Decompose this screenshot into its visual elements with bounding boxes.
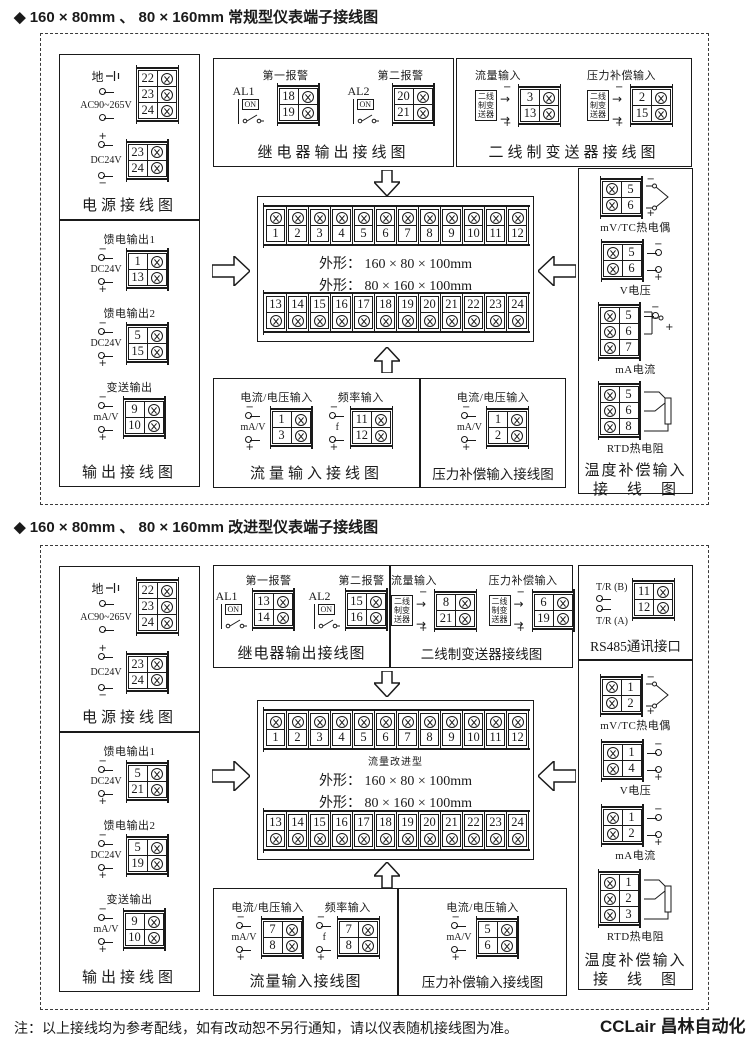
screw-cell bbox=[266, 713, 285, 730]
terminal-number: 6 bbox=[376, 729, 395, 746]
s1-center-terminal-box: 123456789101112 外形： 160 × 80 × 100mm 外形：… bbox=[257, 196, 534, 342]
terminal-strip-top: 123456789101112 bbox=[263, 205, 530, 246]
terminal-number: 9 bbox=[442, 729, 461, 746]
wire-stub bbox=[451, 923, 466, 930]
terminal-number: 1 bbox=[619, 874, 639, 891]
screw-cell bbox=[288, 209, 307, 226]
terminal-column: 14 bbox=[288, 814, 307, 847]
dc-connection: + DC24V − 2324 bbox=[90, 652, 168, 692]
terminal-strip-bottom: 131415161718192021222324 bbox=[263, 292, 530, 333]
wire-labels: − mA/V + bbox=[94, 401, 119, 434]
screw-icon bbox=[151, 858, 163, 870]
thermocouple-icon: − + bbox=[646, 675, 672, 715]
wire-plus: + bbox=[647, 265, 664, 274]
screw-cell bbox=[413, 104, 433, 121]
terminal-number: 13 bbox=[266, 296, 285, 313]
terminal-column: 9 bbox=[442, 209, 461, 242]
terminal-block: 313 bbox=[518, 86, 561, 125]
screw-icon bbox=[302, 107, 314, 119]
terminal-number: 15 bbox=[347, 593, 367, 610]
terminal-block: 56 bbox=[601, 241, 644, 280]
screw-cell bbox=[310, 713, 329, 730]
wire-plus: + bbox=[461, 435, 478, 444]
wire-plus: + bbox=[451, 945, 468, 954]
plus-sign: + bbox=[99, 871, 107, 881]
wire-plus: + bbox=[98, 140, 115, 149]
alarm-tag: AL1 bbox=[216, 590, 250, 603]
terminal-column: 5 bbox=[354, 713, 373, 746]
wire-labels: 地 AC90~265V bbox=[80, 580, 132, 634]
connection: − mA/V + 56 bbox=[447, 918, 519, 957]
screw-icon bbox=[446, 716, 458, 728]
screw-cell bbox=[602, 181, 622, 198]
connection: 二线制变送器 −→ +→ 821 bbox=[391, 591, 475, 630]
signal-label: mA/V bbox=[232, 932, 257, 943]
screw-cell bbox=[464, 312, 483, 329]
screw-cell bbox=[602, 679, 622, 696]
screw-icon bbox=[151, 146, 163, 158]
group-name: 频率输入 bbox=[338, 389, 384, 405]
box-title: 流量输入接线图 bbox=[214, 462, 419, 483]
temp-group: 567 − + mA电流 bbox=[598, 304, 674, 377]
transmitter-line: 制变 bbox=[590, 101, 606, 110]
terminal-number: 5 bbox=[128, 765, 148, 782]
screw-icon bbox=[501, 940, 513, 952]
terminal-row: 2 bbox=[602, 695, 641, 712]
screw-cell bbox=[508, 209, 527, 226]
s2-center-terminal-box: 123456789101112 流量改进型 外形： 160 × 80 × 100… bbox=[257, 700, 534, 860]
plus-sign: + bbox=[99, 285, 107, 295]
terminal-number: 23 bbox=[128, 144, 148, 161]
on-label: ON bbox=[225, 604, 243, 615]
arrow-plus: +→ bbox=[612, 110, 627, 122]
switch-icon bbox=[357, 113, 379, 124]
terminal-number: 9 bbox=[442, 225, 461, 242]
arrow-minus: −→ bbox=[416, 595, 431, 607]
terminal-number: 11 bbox=[634, 583, 654, 600]
terminal-number: 3 bbox=[310, 729, 329, 746]
connection: − mA/V + 910 bbox=[94, 398, 166, 437]
screw-icon bbox=[424, 833, 436, 845]
terminal-block: 519 bbox=[126, 836, 169, 875]
wire-minus: − bbox=[98, 327, 115, 336]
screw-icon bbox=[151, 162, 163, 174]
terminal-row: 8 bbox=[600, 418, 639, 435]
screw-icon bbox=[151, 842, 163, 854]
terminal-number: 7 bbox=[398, 225, 417, 242]
terminal-column: 19 bbox=[398, 814, 417, 847]
box-title: RS485通讯接口 bbox=[579, 635, 692, 655]
wire-stub bbox=[329, 413, 344, 420]
s1-pressure-box: 电流/电压输入 − mA/V + 12 压力补偿输入接线图 bbox=[420, 378, 566, 488]
screw-icon bbox=[607, 763, 619, 775]
connection: − mA/V + 78 bbox=[232, 918, 304, 957]
terminal-row: 15 bbox=[347, 593, 386, 610]
terminal-row: 5 bbox=[478, 921, 517, 938]
screw-cell bbox=[147, 144, 167, 161]
terminal-column: 2 bbox=[288, 713, 307, 746]
terminal-row: 7 bbox=[339, 921, 378, 938]
screw-icon bbox=[151, 674, 163, 686]
screw-icon bbox=[607, 812, 619, 824]
screw-icon bbox=[292, 833, 304, 845]
screw-cell bbox=[358, 921, 378, 938]
ground-row: 地 bbox=[91, 580, 120, 597]
block-arrow-left-icon bbox=[538, 256, 576, 286]
screw-cell bbox=[442, 713, 461, 730]
s1-relay-box: 第一报警 AL1 ON 1819 第二报警 AL2 bbox=[213, 58, 454, 167]
screw-cell bbox=[147, 839, 167, 856]
terminal-number: 13 bbox=[520, 105, 540, 122]
screw-cell bbox=[376, 830, 395, 847]
screw-icon bbox=[336, 716, 348, 728]
terminal-column: 4 bbox=[332, 713, 351, 746]
terminal-row: 13 bbox=[520, 105, 559, 122]
terminal-number: 3 bbox=[619, 906, 639, 923]
screw-cell bbox=[366, 609, 386, 626]
connection: 二线制变送器 −→ +→ 619 bbox=[489, 591, 573, 630]
screw-icon bbox=[286, 940, 298, 952]
switch-icon bbox=[225, 618, 247, 629]
group-name: 馈电输出2 bbox=[104, 305, 156, 321]
terminal-block: 78 bbox=[261, 918, 304, 957]
screw-cell bbox=[147, 343, 167, 360]
transmitter-line: 制变 bbox=[478, 101, 494, 110]
screw-cell bbox=[332, 713, 351, 730]
dimension-line: 外形： 160 × 80 × 100mm bbox=[319, 770, 472, 790]
terminal-number: 24 bbox=[138, 102, 158, 119]
plus-sign: + bbox=[462, 443, 470, 453]
terminal-column: 4 bbox=[332, 209, 351, 242]
connection: − DC24V + 515 bbox=[90, 324, 168, 363]
screw-cell bbox=[147, 253, 167, 270]
terminal-row: 23 bbox=[138, 86, 177, 103]
wire-stub bbox=[99, 627, 114, 634]
terminal-number: 2 bbox=[288, 225, 307, 242]
terminal-number: 11 bbox=[486, 729, 505, 746]
arrow-plus: +→ bbox=[500, 110, 515, 122]
screw-icon bbox=[148, 932, 160, 944]
plus-sign: + bbox=[452, 953, 460, 963]
temp-group: 123 RTD热电阻 bbox=[598, 871, 674, 944]
screw-cell bbox=[266, 830, 285, 847]
screw-icon bbox=[511, 414, 523, 426]
terminal-row: 11 bbox=[352, 411, 391, 428]
block-arrow-left-icon bbox=[538, 761, 576, 791]
screw-icon bbox=[657, 586, 669, 598]
screw-icon bbox=[606, 183, 618, 195]
screw-cell bbox=[600, 402, 620, 419]
transmitter-line: 送器 bbox=[492, 615, 508, 624]
screw-icon bbox=[402, 315, 414, 327]
terminal-number: 2 bbox=[622, 825, 642, 842]
screw-cell bbox=[600, 890, 620, 907]
terminal-number: 11 bbox=[486, 225, 505, 242]
screw-cell bbox=[603, 260, 623, 277]
terminal-row: 23 bbox=[138, 598, 177, 615]
screw-icon bbox=[606, 681, 618, 693]
terminal-number: 13 bbox=[128, 269, 148, 286]
screw-cell bbox=[273, 609, 293, 626]
block-arrow-up-icon bbox=[374, 862, 400, 888]
screw-cell bbox=[147, 855, 167, 872]
wire-labels: + DC24V − bbox=[90, 652, 121, 692]
screw-icon bbox=[446, 212, 458, 224]
screw-cell bbox=[147, 656, 167, 673]
screw-icon bbox=[314, 833, 326, 845]
terminal-number: 24 bbox=[508, 296, 527, 313]
screw-cell bbox=[266, 312, 285, 329]
terminal-block: 12 bbox=[600, 676, 643, 715]
alarm-row: AL2 ON 2021 bbox=[348, 85, 435, 124]
screw-icon bbox=[151, 768, 163, 780]
screw-cell bbox=[486, 830, 505, 847]
section1-title: ◆ 160 × 80mm 、 80 × 160mm 常规型仪表端子接线图 bbox=[14, 6, 378, 27]
terminal-block: 2324 bbox=[126, 653, 169, 692]
temp-group: 56 − + mV/TC热电偶 bbox=[600, 177, 672, 235]
screw-cell bbox=[653, 583, 673, 600]
terminal-row: 12 bbox=[352, 427, 391, 444]
ac-label: AC90~265V bbox=[80, 100, 132, 111]
terminal-column: 5 bbox=[354, 209, 373, 242]
screw-cell bbox=[144, 913, 164, 930]
group-name: 馈电输出1 bbox=[104, 231, 156, 247]
arrow-column: −→ +→ bbox=[514, 593, 529, 629]
wire-stub bbox=[461, 437, 476, 444]
connection: − DC24V + 113 bbox=[90, 250, 168, 289]
screw-icon bbox=[358, 315, 370, 327]
screw-cell bbox=[497, 921, 517, 938]
relay-bracket: ON bbox=[314, 604, 343, 629]
terminal-number: 2 bbox=[288, 729, 307, 746]
wire-stub bbox=[647, 267, 662, 274]
wire-minus: − bbox=[461, 411, 478, 420]
arrow-plus: +→ bbox=[514, 615, 529, 627]
dimension-labels: 流量改进型 外形： 160 × 80 × 100mm 外形： 80 × 160 … bbox=[258, 753, 533, 812]
screw-icon bbox=[336, 833, 348, 845]
watermark: CCLair 昌林自动化 bbox=[596, 1012, 745, 1037]
terminal-row: 1 bbox=[272, 411, 311, 428]
terminal-block: 1516 bbox=[345, 590, 388, 629]
s1-transmitter-box: 流量输入 二线制变送器 −→ +→ 313 压力补偿输入 二线制变送器 −→ + bbox=[456, 58, 692, 167]
temp-group: 12 − + mA电流 bbox=[601, 806, 671, 863]
relay-symbol: AL2 ON bbox=[309, 590, 343, 629]
terminal-row: 3 bbox=[520, 89, 559, 106]
terminal-number: 6 bbox=[621, 197, 641, 214]
terminal-block: 1314 bbox=[252, 590, 295, 629]
transmitter-label-box: 二线制变送器 bbox=[391, 595, 413, 626]
plus-sign: + bbox=[99, 797, 107, 807]
screw-cell bbox=[298, 88, 318, 105]
terminal-number: 19 bbox=[279, 104, 299, 121]
terminal-block: 215 bbox=[630, 86, 673, 125]
terminal-number: 18 bbox=[279, 88, 299, 105]
minus-sign: − bbox=[99, 691, 107, 701]
connection: − DC24V + 521 bbox=[90, 762, 168, 801]
connection: 二线制变送器 −→ +→ 215 bbox=[587, 86, 673, 125]
wire-stub bbox=[647, 815, 662, 822]
terminal-block: 123 bbox=[598, 871, 641, 926]
signal-label: DC24V bbox=[90, 264, 121, 275]
terminal-column: 13 bbox=[266, 814, 285, 847]
block-arrow-down-icon bbox=[374, 170, 400, 196]
terminal-block: 222324 bbox=[136, 67, 179, 122]
connection: 56 − + bbox=[600, 177, 672, 217]
terminal-number: 21 bbox=[436, 610, 456, 627]
terminal-row: 14 bbox=[254, 609, 293, 626]
terminal-number: 23 bbox=[486, 296, 505, 313]
screw-icon bbox=[512, 716, 524, 728]
terminal-number: 19 bbox=[398, 814, 417, 831]
transmitter-label-box: 二线制变送器 bbox=[489, 595, 511, 626]
block-arrow-right-icon bbox=[212, 761, 250, 791]
terminal-number: 18 bbox=[376, 296, 395, 313]
terminal-row: 2 bbox=[632, 89, 671, 106]
terminal-row: 1 bbox=[488, 411, 527, 428]
terminal-number: 6 bbox=[622, 260, 642, 277]
screw-icon bbox=[402, 716, 414, 728]
terminal-column: 16 bbox=[332, 296, 351, 329]
screw-cell bbox=[398, 713, 417, 730]
screw-cell bbox=[600, 323, 620, 340]
terminal-number: 22 bbox=[464, 296, 483, 313]
arrow-right-icon: → bbox=[500, 92, 510, 106]
terminal-column: 18 bbox=[376, 814, 395, 847]
screw-cell bbox=[376, 713, 395, 730]
screw-cell bbox=[147, 672, 167, 689]
wire-stub bbox=[98, 173, 113, 180]
temp-content: 12 − + mV/TC热电偶 14 − + V电压 bbox=[579, 661, 692, 989]
screw-cell bbox=[157, 582, 177, 599]
screw-cell bbox=[332, 830, 351, 847]
transmitter-line: 二线 bbox=[478, 92, 494, 101]
minus-sign: − bbox=[99, 179, 107, 189]
screw-icon bbox=[380, 833, 392, 845]
wire-labels: − mA/V + bbox=[232, 921, 257, 954]
ac-connection: 地 AC90~265V 222324 bbox=[80, 67, 179, 122]
connection-group: 馈电输出2 − DC24V + 519 bbox=[90, 817, 168, 875]
terminal-row: 24 bbox=[138, 614, 177, 631]
screw-icon bbox=[512, 833, 524, 845]
screw-cell bbox=[354, 713, 373, 730]
screw-icon bbox=[336, 315, 348, 327]
s2-power-box: 地 AC90~265V 222324 + DC24V − 2324 电源接线图 bbox=[59, 566, 200, 732]
wire-minus: − bbox=[236, 921, 253, 930]
box-title: 二线制变送器接线图 bbox=[391, 643, 572, 663]
plus-sign: + bbox=[237, 953, 245, 963]
screw-icon bbox=[151, 346, 163, 358]
voltage-wires-icon: − + bbox=[647, 743, 671, 779]
terminal-row: 16 bbox=[347, 609, 386, 626]
terminal-column: 24 bbox=[508, 296, 527, 329]
screw-icon bbox=[446, 833, 458, 845]
alarm-row: AL2 ON 1516 bbox=[309, 590, 388, 629]
screw-icon bbox=[270, 212, 282, 224]
terminal-column: 10 bbox=[464, 209, 483, 242]
plus-sign: + bbox=[615, 119, 623, 129]
screw-cell bbox=[651, 89, 671, 106]
terminal-row: 7 bbox=[263, 921, 302, 938]
relay-bracket: ON bbox=[353, 99, 390, 124]
block-arrow-right-icon bbox=[212, 256, 250, 286]
ac-label: AC90~265V bbox=[80, 612, 132, 623]
ground-label: 地 bbox=[91, 68, 103, 85]
screw-icon bbox=[424, 315, 436, 327]
terminal-number: 23 bbox=[128, 656, 148, 673]
minus-sign: − bbox=[419, 588, 427, 598]
signal-label: mA/V bbox=[447, 932, 472, 943]
screw-icon bbox=[604, 405, 616, 417]
wire-stub bbox=[98, 329, 113, 336]
screw-icon bbox=[380, 716, 392, 728]
screw-icon bbox=[336, 212, 348, 224]
terminal-number: 5 bbox=[619, 307, 639, 324]
dc-label: DC24V bbox=[90, 667, 121, 678]
screw-icon bbox=[375, 430, 387, 442]
screw-cell bbox=[464, 830, 483, 847]
screw-cell bbox=[486, 312, 505, 329]
terminal-row: 8 bbox=[263, 937, 302, 954]
screw-icon bbox=[490, 833, 502, 845]
signal-label: DC24V bbox=[90, 850, 121, 861]
terminal-number: 1 bbox=[272, 411, 292, 428]
screw-icon bbox=[358, 716, 370, 728]
terminal-column: 12 bbox=[508, 713, 527, 746]
wire-plus: + bbox=[98, 937, 115, 946]
group-name: mV/TC热电偶 bbox=[600, 219, 671, 235]
wire-plus: + bbox=[329, 435, 346, 444]
terminal-number: 10 bbox=[464, 225, 483, 242]
terminal-number: 12 bbox=[352, 427, 372, 444]
plus-sign: + bbox=[503, 119, 511, 129]
screw-icon bbox=[402, 212, 414, 224]
arrow-right-icon: → bbox=[612, 92, 622, 106]
box-title: 二线制变送器接线图 bbox=[457, 141, 691, 162]
box-title: 继电器输出接线图 bbox=[214, 642, 389, 663]
screw-cell bbox=[144, 417, 164, 434]
temp-group: 56 − + V电压 bbox=[601, 241, 671, 298]
signal-label: f bbox=[336, 422, 339, 433]
terminal-number: 5 bbox=[128, 327, 148, 344]
terminal-number: 16 bbox=[332, 814, 351, 831]
wire-labels: − DC24V + bbox=[90, 839, 121, 872]
block-arrow-up-icon bbox=[374, 347, 400, 373]
terminal-column: 7 bbox=[398, 209, 417, 242]
terminal-block: 78 bbox=[337, 918, 380, 957]
terminal-row: 15 bbox=[632, 105, 671, 122]
terminal-row: 6 bbox=[478, 937, 517, 954]
screw-icon bbox=[468, 716, 480, 728]
ground-icon bbox=[106, 70, 121, 82]
terminal-number: 4 bbox=[332, 729, 351, 746]
group-name: 变送输出 bbox=[107, 891, 153, 907]
screw-cell bbox=[288, 312, 307, 329]
connection: 14 − + bbox=[601, 741, 671, 780]
screw-icon bbox=[270, 315, 282, 327]
terminal-row: 22 bbox=[138, 582, 177, 599]
terminal-number: 21 bbox=[394, 104, 414, 121]
screw-cell bbox=[354, 312, 373, 329]
relay-bracket: ON bbox=[238, 99, 275, 124]
wire-plus: + bbox=[98, 425, 115, 434]
screw-cell bbox=[508, 713, 527, 730]
screw-cell bbox=[147, 160, 167, 177]
current-wires-icon: − + bbox=[647, 808, 671, 844]
transmitter-line: 送器 bbox=[478, 110, 494, 119]
screw-icon bbox=[604, 326, 616, 338]
terminal-row: 2 bbox=[603, 825, 642, 842]
arrow-column: −→ +→ bbox=[416, 593, 431, 629]
